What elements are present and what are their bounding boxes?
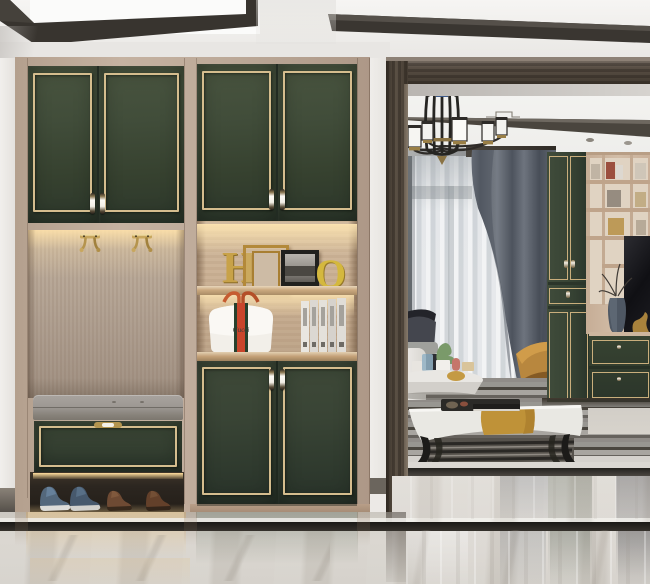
svg-text:Gucci: Gucci — [233, 326, 250, 334]
